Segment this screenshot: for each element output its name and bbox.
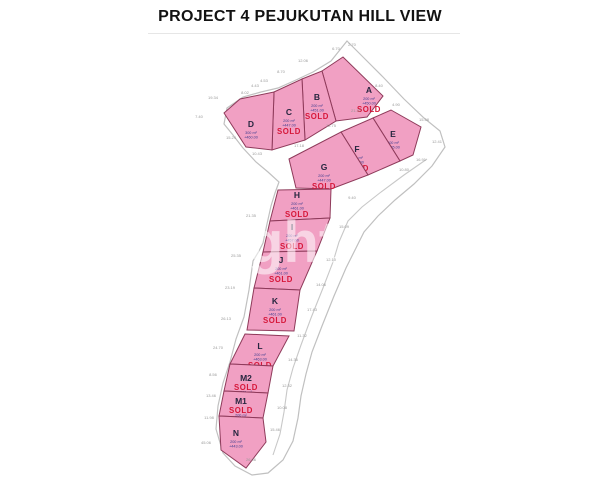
dimension-label: 10.80 [399, 167, 410, 172]
plot-C-letter: C [286, 107, 292, 117]
dimension-label: 8.70 [277, 69, 286, 74]
dimension-label: 14.36 [288, 357, 299, 362]
plot-C-sold-label: SOLD [277, 127, 301, 136]
plot-G-area: 200 m² [318, 174, 331, 178]
plot-L-letter: L [257, 341, 262, 351]
dimension-label: 25.35 [231, 253, 242, 258]
plot-K-letter: K [272, 296, 279, 306]
plot-A-area: 200 m² [363, 97, 376, 101]
plot-B-area: 200 m² [311, 104, 324, 108]
dimension-label: 8.56 [209, 372, 218, 377]
dimension-label: 16.91 [416, 157, 427, 162]
plot-G-letter: G [321, 162, 328, 172]
plot-H-letter: H [294, 190, 300, 200]
dimension-label: 11.32 [297, 333, 307, 338]
dimension-label: 21.35 [246, 213, 257, 218]
dimension-label: 13.46 [206, 393, 217, 398]
dimension-label: 12.06 [298, 58, 309, 63]
plot-C-area: 200 m² [283, 119, 296, 123]
plot-A-letter: A [366, 85, 372, 95]
dimension-label: 12.32 [282, 383, 293, 388]
dimension-label: 4.53 [260, 78, 269, 83]
dimension-label: 7.40 [195, 114, 204, 119]
dimension-label: 10.08 [277, 405, 288, 410]
dimension-label: 12.41 [432, 139, 443, 144]
dimension-label: 6.70 [332, 46, 341, 51]
plot-K-sold-label: SOLD [263, 316, 287, 325]
dimension-label: 15.58 [419, 117, 430, 122]
dimension-label: 19.34 [208, 95, 219, 100]
dimension-label: 15.09 [339, 224, 350, 229]
plot-H-area: 200 m² [291, 202, 304, 206]
watermark-text: ght [248, 210, 338, 275]
plot-M2-letter: M2 [240, 373, 252, 383]
dimension-label: 15.24 [226, 135, 237, 140]
plot-D-area: 300 m² [245, 131, 258, 135]
plot-D-elevation: +460.00 [244, 136, 258, 140]
plot-B-sold-label: SOLD [305, 112, 329, 121]
site-map-container: A200 m²+450.00SOLDB200 m²+451.00SOLDC200… [0, 0, 600, 477]
plot-M1-sold-label: SOLD [229, 406, 253, 415]
dimension-label: 4.43 [251, 83, 260, 88]
plot-B-letter: B [314, 92, 320, 102]
plot-E-letter: E [390, 129, 396, 139]
dimension-label: 9.40 [348, 195, 357, 200]
dimension-label: 8.40 [375, 83, 384, 88]
plot-L-area: 200 m² [254, 353, 267, 357]
plot-N-area: 200 m² [230, 440, 243, 444]
plot-D-letter: D [248, 119, 254, 129]
plot-N-elevation: +443.00 [229, 445, 243, 449]
plot-J-sold-label: SOLD [269, 275, 293, 284]
dimension-label: 2.70 [348, 42, 357, 47]
plot-K-area: 200 m² [269, 308, 282, 312]
dimension-label: 23.19 [225, 285, 236, 290]
dimension-label: 4.90 [392, 102, 401, 107]
dimension-label: 11.98 [204, 415, 214, 420]
dimension-label: 12.10 [326, 257, 337, 262]
dimension-label: 21.37 [351, 108, 362, 113]
dimension-label: 14.06 [316, 282, 327, 287]
dimension-label: 8.02 [241, 90, 250, 95]
site-map: A200 m²+450.00SOLDB200 m²+451.00SOLDC200… [0, 0, 600, 477]
plot-M1-letter: M1 [235, 396, 247, 406]
plot-N-letter: N [233, 428, 239, 438]
dimension-label: 10.43 [252, 151, 263, 156]
plot-M2-sold-label: SOLD [234, 383, 258, 392]
dimension-label: 17.43 [307, 307, 318, 312]
dimension-label: 12.75 [326, 123, 337, 128]
dimension-label: 24.70 [213, 345, 224, 350]
dimension-label: 26.13 [221, 316, 232, 321]
dimension-label: 45.06 [201, 440, 212, 445]
dimension-label: 26.06 [246, 457, 257, 462]
dimension-label: 15.46 [270, 427, 281, 432]
plot-F-letter: F [354, 144, 359, 154]
dimension-label: 17.18 [294, 143, 305, 148]
